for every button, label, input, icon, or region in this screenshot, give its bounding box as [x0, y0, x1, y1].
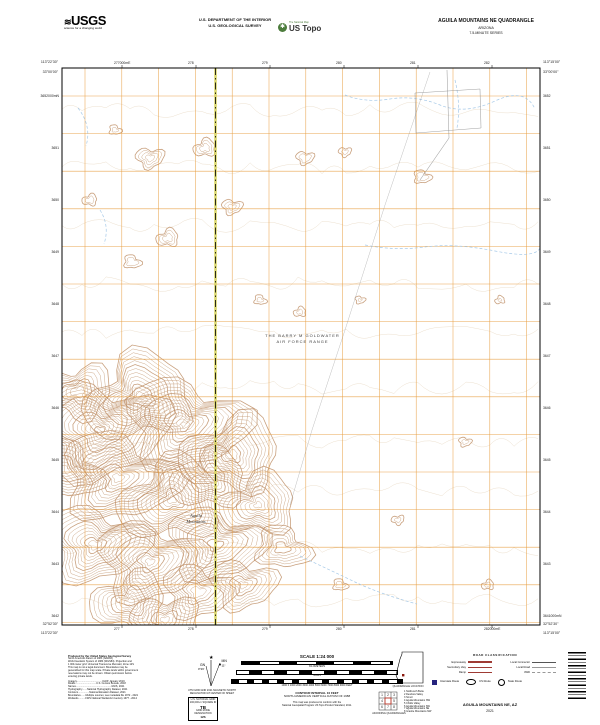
grid-label: 3644	[28, 510, 59, 514]
quad-state: ARIZONA	[380, 26, 592, 30]
grid-label: 3650	[543, 198, 551, 202]
grid-label: 3651	[543, 146, 551, 150]
current-quad-cell	[385, 698, 391, 704]
grid-label: 279	[262, 61, 268, 65]
utm-grid	[62, 68, 540, 625]
quad-title: AGUILA MOUNTAINS NE QUADRANGLE	[380, 18, 592, 24]
fourwd-line-swatch	[532, 672, 556, 673]
local-connector-line-swatch	[532, 662, 556, 663]
range-label-line2: AIR FORCE RANGE	[240, 339, 365, 344]
grid-label: 3652000mN	[28, 94, 59, 98]
svg-text:3: 3	[393, 693, 395, 697]
grid-label: 277	[114, 627, 120, 631]
quad-title-block: AGUILA MOUNTAINS NE QUADRANGLE ARIZONA 7…	[380, 18, 592, 35]
grid-label: 280	[336, 61, 342, 65]
grid-label: 277000mE	[114, 61, 130, 65]
quad-location-label: QUADRANGLE LOCATION	[376, 686, 440, 689]
expressway-line-swatch	[468, 661, 492, 663]
barcode	[568, 652, 586, 700]
svg-text:5: 5	[393, 699, 395, 703]
corner-tr-lat: 33°00'00"	[543, 70, 558, 74]
quad-series: 7.5-MINUTE SERIES	[380, 31, 592, 35]
grid-label: 3650	[28, 198, 59, 202]
produced-by-line: Wetlands..........FWS National Wetlands …	[68, 698, 193, 701]
grid-label: 3646	[28, 406, 59, 410]
grid-label: 3648	[543, 302, 551, 306]
interstate-shield-icon	[432, 680, 437, 685]
corner-tl-lon: 113°22'30"	[41, 60, 58, 64]
adjoining-quad-label: ADJOINING QUADRANGLES	[358, 713, 420, 716]
state-locator-map	[392, 651, 426, 685]
svg-text:8: 8	[393, 705, 395, 709]
grid-label: 3645	[543, 458, 551, 462]
grid-label: 3645	[28, 458, 59, 462]
mn-value: 11°	[222, 664, 226, 668]
ustopo-logo: ✱ The National Map US Topo	[278, 22, 321, 33]
quad-location-marker	[402, 674, 404, 676]
ustopo-globe-icon: ✱	[278, 23, 287, 32]
plains-contours	[62, 102, 538, 608]
local-road-line-swatch	[532, 667, 556, 668]
road-label-secondary: Secondary Hwy	[432, 666, 468, 669]
mountain-contours	[27, 125, 505, 650]
grid-label: 280	[336, 627, 342, 631]
grid-label: 278	[188, 627, 194, 631]
grid-label: 3647	[28, 354, 59, 358]
grid-label: 281	[410, 61, 416, 65]
corner-tl-lat: 33°00'00"	[43, 70, 58, 74]
usng-zone: 12S	[189, 716, 217, 720]
corner-br-lon: 113°15'00"	[543, 631, 560, 635]
mn-label: MN	[222, 659, 228, 663]
grid-label: 3647	[543, 354, 551, 358]
road-label-4wd: 4WD	[496, 671, 532, 674]
aguila-mountains-label: Aguila Mountains	[175, 513, 217, 524]
mtn-label-line2: Mountains	[175, 519, 217, 525]
road-label-ramp: Ramp	[432, 671, 468, 674]
topo-map	[0, 0, 600, 725]
svg-text:2: 2	[387, 693, 389, 697]
grid-label: 3649	[543, 250, 551, 254]
usng-box: U.S. NATIONAL GRID 100,000-m SQUARE ID T…	[188, 697, 218, 721]
road-class-title: ROAD CLASSIFICATION	[432, 654, 558, 658]
road-label-expressway: Expressway	[432, 661, 468, 664]
air-force-range-label: THE BARRY M GOLDWATER AIR FORCE RANGE	[240, 333, 365, 344]
gn-value: 0°26'	[198, 667, 205, 671]
grid-label: 279	[262, 627, 268, 631]
corner-bl-lat: 32°52'30"	[43, 622, 58, 626]
state-route-circle-icon	[498, 679, 505, 686]
road-label-local-road: Local Road	[496, 666, 532, 669]
scale-units-km: KILOMETERS	[228, 666, 406, 669]
scale-title: SCALE 1:24 000	[228, 654, 406, 660]
usgs-tagline: science for a changing world	[64, 27, 106, 31]
map-year: 2021	[420, 709, 560, 713]
svg-text:4: 4	[381, 699, 383, 703]
us-route-oval-icon	[466, 679, 476, 686]
map-name-block: AGUILA MOUNTAINS NE, AZ 2021	[420, 702, 560, 713]
produced-by-line: entering private lands.	[68, 676, 193, 679]
ustopo-name: US Topo	[289, 25, 321, 33]
scale-units-miles: MILES	[228, 675, 406, 678]
road-label-local-connector: Local Connector	[496, 661, 532, 664]
grid-label: 3643	[543, 562, 551, 566]
ramp-line-swatch	[468, 672, 492, 673]
map-name: AGUILA MOUNTAINS NE, AZ	[420, 702, 560, 707]
grid-label: 282	[484, 61, 490, 65]
road-classification: ROAD CLASSIFICATION Expressway Secondary…	[432, 654, 558, 686]
grid-label: 3652	[543, 94, 551, 98]
corner-br-lat: 32°52'30"	[543, 622, 558, 626]
corner-bl-lon: 113°22'30"	[41, 631, 58, 635]
grid-label: 281	[410, 627, 416, 631]
svg-text:1: 1	[381, 693, 383, 697]
adjoining-quad-grid: 123 45 678	[378, 691, 398, 711]
grid-label: 3644	[543, 510, 551, 514]
grid-label: 3646	[543, 406, 551, 410]
roads	[290, 70, 481, 505]
grid-label: 3641000mN	[543, 614, 561, 618]
us-route-label: US Route	[479, 680, 491, 683]
corner-tr-lon: 113°15'00"	[543, 60, 560, 64]
grid-label: 3643	[28, 562, 59, 566]
state-route-label: State Route	[508, 680, 522, 683]
svg-text:7: 7	[387, 705, 389, 709]
grid-label: 3642	[28, 614, 59, 618]
grid-label: 3649	[28, 250, 59, 254]
grid-label: 3648	[28, 302, 59, 306]
grid-label: 3651	[28, 146, 59, 150]
secondary-line-swatch	[468, 667, 492, 668]
grid-label: 282000mE	[484, 627, 500, 631]
svg-text:6: 6	[381, 705, 383, 709]
range-label-line1: THE BARRY M GOLDWATER	[240, 333, 365, 338]
true-north-star-icon: ★	[209, 655, 214, 661]
interstate-route-label: Interstate Route	[440, 680, 459, 683]
grid-label: 278	[188, 61, 194, 65]
usgs-logo: ≋USGS science for a changing world	[64, 13, 106, 31]
